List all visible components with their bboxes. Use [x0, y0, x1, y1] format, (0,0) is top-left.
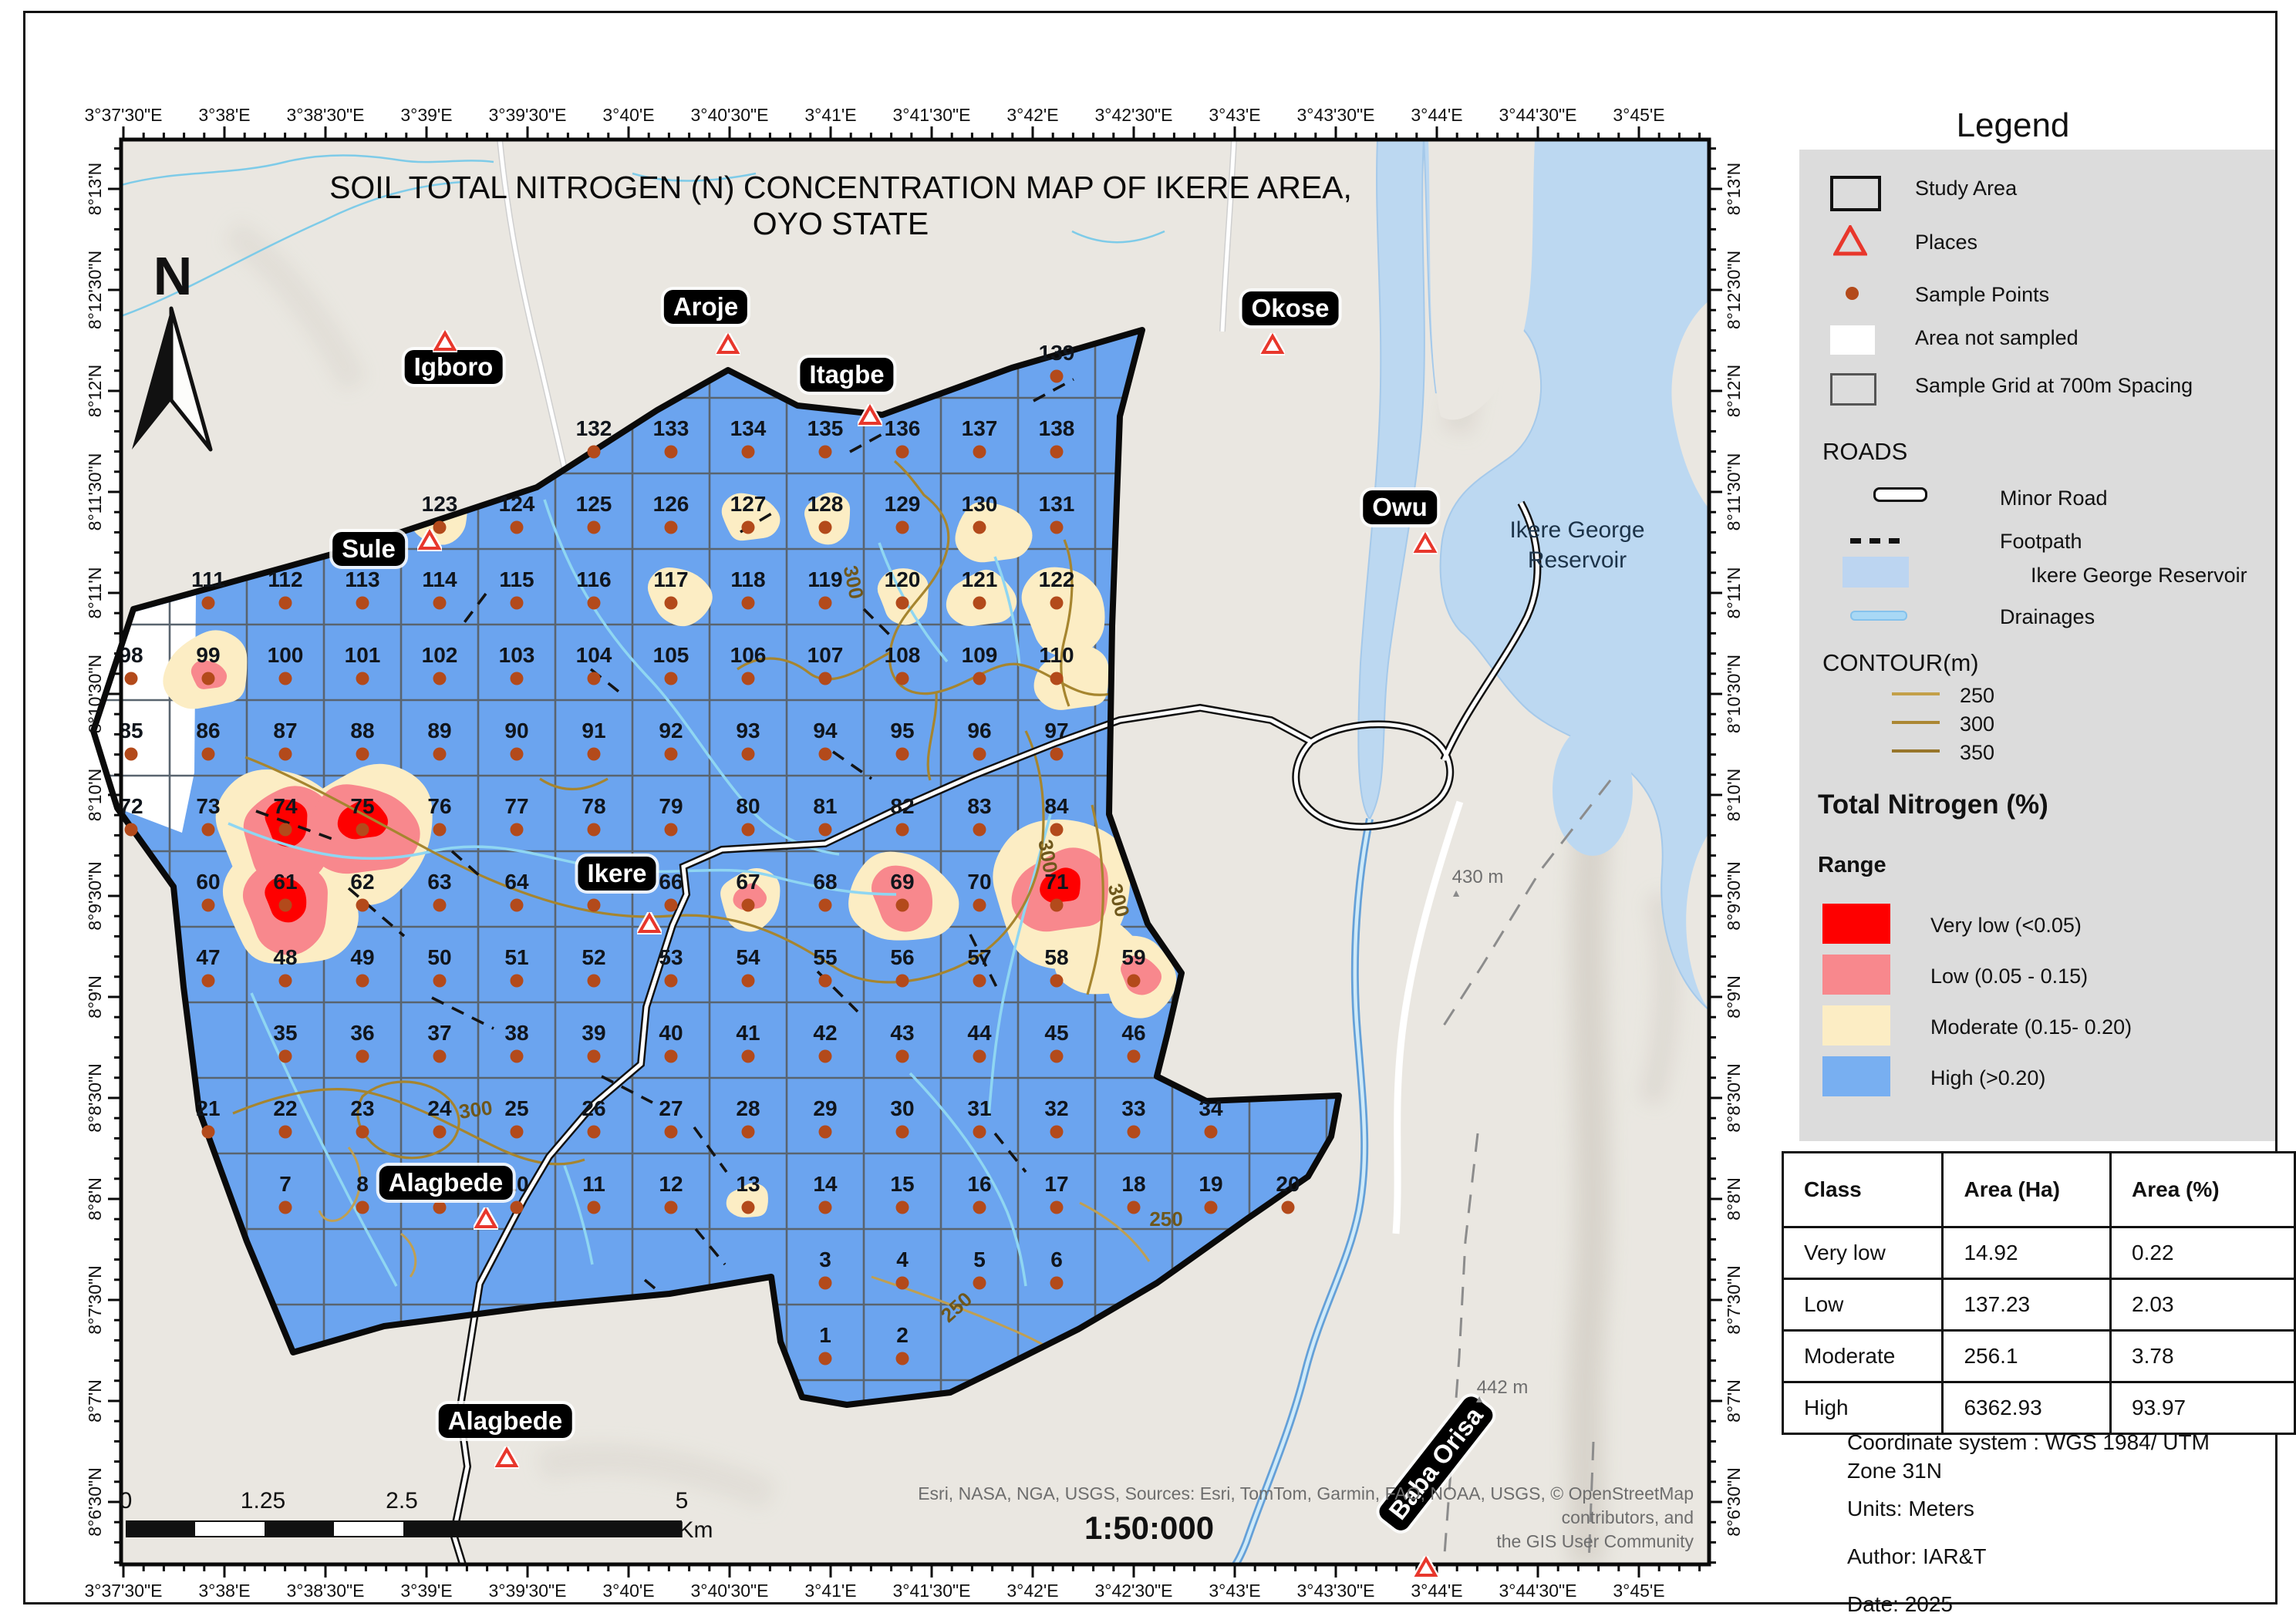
legend-contour-value: 300: [1960, 712, 1994, 737]
sample-number: 29: [813, 1096, 837, 1120]
sample-dot: [819, 823, 832, 837]
sample-dot: [511, 1201, 524, 1214]
sample-dot: [356, 597, 369, 610]
sample-dot: [819, 672, 832, 685]
sample-number: 106: [730, 643, 767, 667]
sample-number: 57: [967, 945, 991, 969]
sample-number: 49: [350, 945, 374, 969]
sample-dot: [202, 899, 215, 912]
legend-swatch-reservoir: [1843, 557, 1909, 588]
sample-number: 139: [1039, 341, 1075, 365]
legend-class-swatch: [1822, 1005, 1890, 1046]
sample-number: 109: [962, 643, 998, 667]
sample-number: 127: [730, 492, 767, 516]
lon-label: 3°44'30"E: [1499, 105, 1576, 125]
sample-dot: [1050, 521, 1064, 534]
sample-dot: [665, 597, 678, 610]
sample-dot: [588, 975, 601, 988]
sample-dot: [665, 521, 678, 534]
sample-number: 12: [659, 1172, 683, 1196]
sample-number: 114: [422, 567, 457, 591]
scale-bar-unit: Km: [679, 1517, 713, 1544]
sample-dot: [588, 672, 601, 685]
sample-number: 19: [1199, 1172, 1222, 1196]
sample-number: 41: [736, 1021, 760, 1045]
sample-number: 20: [1276, 1172, 1300, 1196]
sample-number: 35: [273, 1021, 297, 1045]
sample-number: 134: [730, 416, 767, 440]
summit-icon: ▲: [1474, 1392, 1485, 1405]
sample-dot: [279, 748, 292, 761]
sample-dot: [819, 446, 832, 459]
sample-number: 88: [350, 719, 374, 742]
sample-number: 105: [653, 643, 689, 667]
sample-number: 34: [1199, 1096, 1223, 1120]
basemap-attribution: Esri, NASA, NGA, USGS, Sources: Esri, To…: [910, 1482, 1694, 1554]
sample-number: 113: [345, 567, 379, 591]
sample-dot: [511, 1126, 524, 1139]
sample-dot: [1128, 1050, 1141, 1063]
sample-number: 58: [1044, 945, 1068, 969]
sample-number: 74: [273, 794, 298, 818]
sample-number: 111: [191, 567, 225, 591]
table-header: Area (Ha): [1943, 1153, 2111, 1227]
legend-contour-value: 250: [1960, 683, 1994, 709]
sample-dot: [665, 975, 678, 988]
scale-bar-tick-label: 5: [676, 1488, 689, 1514]
sample-dot: [1050, 597, 1064, 610]
sample-dot: [742, 823, 755, 837]
sample-dot: [896, 1126, 909, 1139]
sample-number: 30: [890, 1096, 914, 1120]
sample-dot: [511, 597, 524, 610]
sample-dot: [1050, 672, 1064, 685]
sample-number: 43: [890, 1021, 914, 1045]
sample-dot: [356, 899, 369, 912]
sample-dot: [1050, 975, 1064, 988]
sample-dot: [588, 446, 601, 459]
sample-dot: [1282, 1201, 1295, 1214]
sample-dot: [511, 823, 524, 837]
lat-label: 8°12'30"N: [1724, 251, 1744, 329]
sample-dot: [819, 521, 832, 534]
legend-item-label: Minor Road: [2000, 486, 2296, 511]
lon-label: 3°45'E: [1613, 1581, 1664, 1601]
table-cell: High: [1783, 1382, 1943, 1434]
lon-label: 3°41'E: [804, 1581, 856, 1601]
sample-number: 45: [1044, 1021, 1068, 1045]
sample-dot: [742, 1126, 755, 1139]
sample-number: 102: [422, 643, 458, 667]
legend-contour-line: [1892, 721, 1940, 724]
lat-label: 8°8'30"N: [1724, 1063, 1744, 1133]
sample-number: 135: [807, 416, 844, 440]
lat-label: 8°11'N: [1724, 567, 1744, 619]
table-cell: Low: [1783, 1279, 1943, 1331]
sample-number: 33: [1121, 1096, 1145, 1120]
sample-dot: [433, 597, 447, 610]
lon-label: 3°37'30"E: [84, 1581, 162, 1601]
legend-roads-header: ROADS: [1822, 438, 1907, 466]
sample-number: 120: [885, 567, 921, 591]
sample-dot: [433, 1050, 447, 1063]
sample-number: 13: [736, 1172, 760, 1196]
metadata-date: Date: 2025: [1847, 1590, 2279, 1618]
legend-contour-header: CONTOUR(m): [1822, 649, 1979, 677]
lat-label: 8°13'N: [1724, 163, 1744, 216]
sample-number: 67: [736, 870, 760, 894]
lat-label: 8°10'30"N: [1724, 655, 1744, 733]
sample-number: 124: [499, 492, 535, 516]
sample-number: 68: [813, 870, 837, 894]
sample-number: 84: [1044, 794, 1069, 818]
sample-number: 1: [819, 1323, 831, 1347]
sample-number: 122: [1039, 567, 1075, 591]
legend-nitrogen-title: Total Nitrogen (%): [1818, 790, 2048, 820]
lat-label: 8°6'30"N: [85, 1467, 105, 1537]
sample-number: 54: [736, 945, 760, 969]
sample-dot: [356, 823, 369, 837]
lat-label: 8°6'30"N: [1724, 1467, 1744, 1537]
sample-dot: [588, 899, 601, 912]
lon-label: 3°38'30"E: [286, 1581, 364, 1601]
sample-number: 95: [890, 719, 914, 742]
lon-label: 3°43'E: [1209, 105, 1260, 125]
sample-dot: [202, 823, 215, 837]
legend-swatch-grid: [1830, 373, 1876, 406]
sample-dot: [433, 1201, 447, 1214]
sample-dot: [1128, 1126, 1141, 1139]
table-cell: 0.22: [2111, 1227, 2295, 1279]
place-label: Itagbe: [800, 358, 893, 392]
legend-class-label: Moderate (0.15- 0.20): [1930, 1015, 2254, 1040]
sample-dot: [1050, 1277, 1064, 1290]
sample-number: 103: [499, 643, 535, 667]
legend-item-label: Ikere George Reservoir: [2031, 563, 2296, 588]
legend-contour-line: [1892, 692, 1940, 695]
sample-dot: [588, 823, 601, 837]
legend-contour-value: 350: [1960, 740, 1994, 766]
reservoir-label: Ikere George Reservoir: [1504, 515, 1650, 575]
sample-dot: [742, 1201, 755, 1214]
sample-number: 123: [422, 492, 458, 516]
sample-dot: [742, 975, 755, 988]
sample-number: 8: [356, 1172, 369, 1196]
lon-label: 3°39'E: [400, 105, 452, 125]
sample-dot: [896, 748, 909, 761]
lat-label: 8°11'30"N: [85, 453, 105, 531]
sample-dot: [125, 823, 138, 837]
legend-item-label: Sample Points: [1915, 282, 2239, 308]
sample-number: 90: [504, 719, 528, 742]
sample-dot: [588, 521, 601, 534]
sample-dot: [665, 1050, 678, 1063]
summit-icon: ▲: [1451, 887, 1462, 899]
sample-dot: [973, 1050, 986, 1063]
table-cell: Very low: [1783, 1227, 1943, 1279]
sample-dot: [896, 597, 909, 610]
lon-label: 3°44'E: [1411, 105, 1462, 125]
sample-dot: [665, 823, 678, 837]
sample-number: 128: [807, 492, 844, 516]
lat-label: 8°8'N: [1724, 1177, 1744, 1221]
sample-dot: [1128, 975, 1141, 988]
sample-dot: [742, 446, 755, 459]
sample-dot: [1050, 446, 1064, 459]
legend-class-swatch: [1822, 904, 1890, 944]
legend-item-label: Places: [1915, 230, 2239, 255]
scale-bar: [126, 1520, 682, 1537]
lon-label: 3°43'30"E: [1296, 1581, 1374, 1601]
sample-dot: [279, 1050, 292, 1063]
sample-number: 130: [962, 492, 998, 516]
sample-dot: [973, 1126, 986, 1139]
sample-dot: [819, 597, 832, 610]
sample-number: 83: [967, 794, 991, 818]
sample-dot: [896, 1050, 909, 1063]
legend-swatch-minorroad: [1873, 487, 1927, 502]
sample-number: 80: [736, 794, 760, 818]
sample-dot: [896, 1201, 909, 1214]
legend-item-label: Area not sampled: [1915, 325, 2239, 351]
sample-dot: [1050, 1126, 1064, 1139]
sample-number: 50: [427, 945, 451, 969]
sample-number: 136: [885, 416, 921, 440]
sample-number: 21: [196, 1096, 220, 1120]
sample-dot: [356, 672, 369, 685]
sample-dot: [819, 1126, 832, 1139]
legend-item-label: Drainages: [2000, 604, 2296, 630]
sample-dot: [1050, 823, 1064, 837]
sample-dot: [279, 1201, 292, 1214]
sample-dot: [742, 672, 755, 685]
sample-number: 87: [273, 719, 297, 742]
sample-dot: [973, 899, 986, 912]
sample-number: 131: [1039, 492, 1075, 516]
lon-label: 3°38'E: [198, 105, 250, 125]
sample-dot: [511, 521, 524, 534]
sample-number: 22: [273, 1096, 297, 1120]
lat-label: 8°7'N: [1724, 1379, 1744, 1423]
sample-dot: [665, 748, 678, 761]
sample-dot: [588, 1201, 601, 1214]
sample-number: 81: [813, 794, 837, 818]
place-label: Igboro: [405, 350, 503, 384]
lon-label: 3°40'E: [602, 1581, 654, 1601]
sample-number: 27: [659, 1096, 683, 1120]
sample-number: 108: [885, 643, 921, 667]
sample-number: 59: [1121, 945, 1145, 969]
lon-label: 3°39'E: [400, 1581, 452, 1601]
sample-number: 48: [273, 945, 297, 969]
lat-label: 8°11'30"N: [1724, 453, 1744, 531]
lat-label: 8°9'30"N: [85, 861, 105, 931]
sample-number: 17: [1044, 1172, 1068, 1196]
sample-dot: [819, 975, 832, 988]
sample-dot: [356, 975, 369, 988]
sample-dot: [819, 748, 832, 761]
sample-dot: [1050, 1050, 1064, 1063]
sample-number: 36: [350, 1021, 374, 1045]
lon-label: 3°44'30"E: [1499, 1581, 1576, 1601]
sample-dot: [742, 597, 755, 610]
sample-number: 91: [582, 719, 605, 742]
lat-label: 8°10'N: [85, 769, 105, 822]
contour-label: 300: [457, 1096, 494, 1123]
legend-panel: Study AreaPlacesSample PointsArea not sa…: [1799, 150, 2275, 1141]
legend-swatch-notsampled: [1830, 325, 1875, 355]
place-label: Ikere: [578, 857, 656, 891]
scale-bar-tick-label: 0: [120, 1488, 133, 1514]
lat-label: 8°7'30"N: [85, 1265, 105, 1335]
sample-number: 37: [427, 1021, 451, 1045]
sample-dot: [896, 1277, 909, 1290]
sample-number: 118: [730, 567, 765, 591]
sample-number: 73: [196, 794, 220, 818]
lat-label: 8°9'30"N: [1724, 861, 1744, 931]
sample-number: 64: [504, 870, 529, 894]
sample-number: 55: [813, 945, 837, 969]
sample-number: 133: [653, 416, 689, 440]
lat-label: 8°7'30"N: [1724, 1265, 1744, 1335]
sample-number: 93: [736, 719, 760, 742]
sample-dot: [742, 1050, 755, 1063]
sample-number: 75: [350, 794, 374, 818]
sample-dot: [202, 672, 215, 685]
lat-label: 8°13'N: [85, 163, 105, 216]
lon-label: 3°42'30"E: [1094, 105, 1172, 125]
map-title: SOIL TOTAL NITROGEN (N) CONCENTRATION MA…: [308, 170, 1373, 242]
sample-dot: [896, 672, 909, 685]
sample-dot: [896, 1352, 909, 1365]
sample-number: 110: [1039, 643, 1074, 667]
table-cell: 14.92: [1943, 1227, 2111, 1279]
sample-number: 137: [962, 416, 998, 440]
sample-number: 39: [582, 1021, 605, 1045]
sample-number: 66: [659, 870, 683, 894]
sample-dot: [896, 823, 909, 837]
sample-number: 53: [659, 945, 683, 969]
sample-dot: [433, 672, 447, 685]
sample-dot: [202, 748, 215, 761]
sample-dot: [433, 1126, 447, 1139]
contour-label: 250: [1149, 1207, 1182, 1231]
sample-number: 56: [890, 945, 914, 969]
legend-class-swatch: [1822, 955, 1890, 995]
sample-number: 126: [653, 492, 689, 516]
map-sheet: 1391321331341351361371381231241251261271…: [0, 0, 2296, 1623]
legend-item-label: Sample Grid at 700m Spacing: [1915, 373, 2239, 399]
sample-number: 138: [1039, 416, 1075, 440]
sample-dot: [973, 975, 986, 988]
sample-dot: [279, 823, 292, 837]
place-label: Alagbede: [379, 1166, 513, 1200]
table-cell: Moderate: [1783, 1331, 1943, 1382]
sample-dot: [819, 1201, 832, 1214]
sample-dot: [588, 1050, 601, 1063]
table-row: High6362.9393.97: [1783, 1382, 2295, 1434]
sample-number: 104: [576, 643, 612, 667]
sample-number: 77: [504, 794, 528, 818]
sample-number: 4: [896, 1248, 909, 1271]
lon-label: 3°45'E: [1613, 105, 1664, 125]
place-label: Owu: [1363, 490, 1437, 524]
metadata-coordinate-system: Coordinate system : WGS 1984/ UTM Zone 3…: [1847, 1428, 2279, 1485]
sample-dot: [1128, 1201, 1141, 1214]
sample-dot: [973, 672, 986, 685]
table-header: Area (%): [2111, 1153, 2295, 1227]
sample-dot: [973, 597, 986, 610]
sample-dot: [973, 1201, 986, 1214]
sample-number: 97: [1044, 719, 1068, 742]
sample-number: 28: [736, 1096, 760, 1120]
lat-label: 8°8'30"N: [85, 1063, 105, 1133]
legend-class-swatch: [1822, 1056, 1890, 1096]
sample-dot: [665, 446, 678, 459]
sample-dot: [1050, 748, 1064, 761]
lon-label: 3°38'30"E: [286, 105, 364, 125]
place-label: Okose: [1242, 291, 1339, 325]
lat-label: 8°8'N: [85, 1177, 105, 1221]
sample-number: 38: [504, 1021, 528, 1045]
legend-title: Legend: [1905, 106, 2121, 145]
area-not-sampled: [93, 595, 196, 833]
sample-number: 116: [576, 567, 611, 591]
lat-label: 8°12'30"N: [85, 251, 105, 329]
sample-dot: [433, 823, 447, 837]
sample-dot: [1050, 1201, 1064, 1214]
sample-dot: [742, 899, 755, 912]
north-label: N: [143, 245, 202, 307]
sample-dot: [1050, 370, 1064, 383]
sample-number: 96: [967, 719, 991, 742]
lon-label: 3°42'E: [1006, 105, 1058, 125]
lon-label: 3°42'E: [1006, 1581, 1058, 1601]
sample-number: 46: [1121, 1021, 1145, 1045]
sample-number: 14: [813, 1172, 838, 1196]
sample-number: 47: [196, 945, 220, 969]
sample-number: 70: [967, 870, 991, 894]
sample-dot: [433, 748, 447, 761]
table-cell: 3.78: [2111, 1331, 2295, 1382]
legend-swatch-drainage: [1850, 611, 1907, 621]
lat-label: 8°12'N: [85, 365, 105, 418]
sample-dot: [742, 748, 755, 761]
sample-number: 31: [967, 1096, 991, 1120]
legend-class-label: Low (0.05 - 0.15): [1930, 964, 2254, 989]
sample-number: 119: [807, 567, 842, 591]
lon-label: 3°38'E: [198, 1581, 250, 1601]
sample-number: 89: [427, 719, 451, 742]
sample-number: 32: [1044, 1096, 1068, 1120]
table-cell: 2.03: [2111, 1279, 2295, 1331]
table-header: Class: [1783, 1153, 1943, 1227]
table-cell: 6362.93: [1943, 1382, 2111, 1434]
sample-number: 101: [345, 643, 381, 667]
scale-bar-tick-label: 1.25: [241, 1488, 285, 1514]
sample-number: 15: [890, 1172, 914, 1196]
sample-dot: [896, 521, 909, 534]
sample-dot: [202, 1126, 215, 1139]
sample-number: 117: [653, 567, 688, 591]
table-row: Low137.232.03: [1783, 1279, 2295, 1331]
sample-dot: [511, 748, 524, 761]
legend-swatch-study: [1830, 176, 1881, 211]
sample-number: 82: [890, 794, 914, 818]
sample-number: 115: [499, 567, 534, 591]
lat-label: 8°7'N: [85, 1379, 105, 1423]
sample-number: 40: [659, 1021, 683, 1045]
